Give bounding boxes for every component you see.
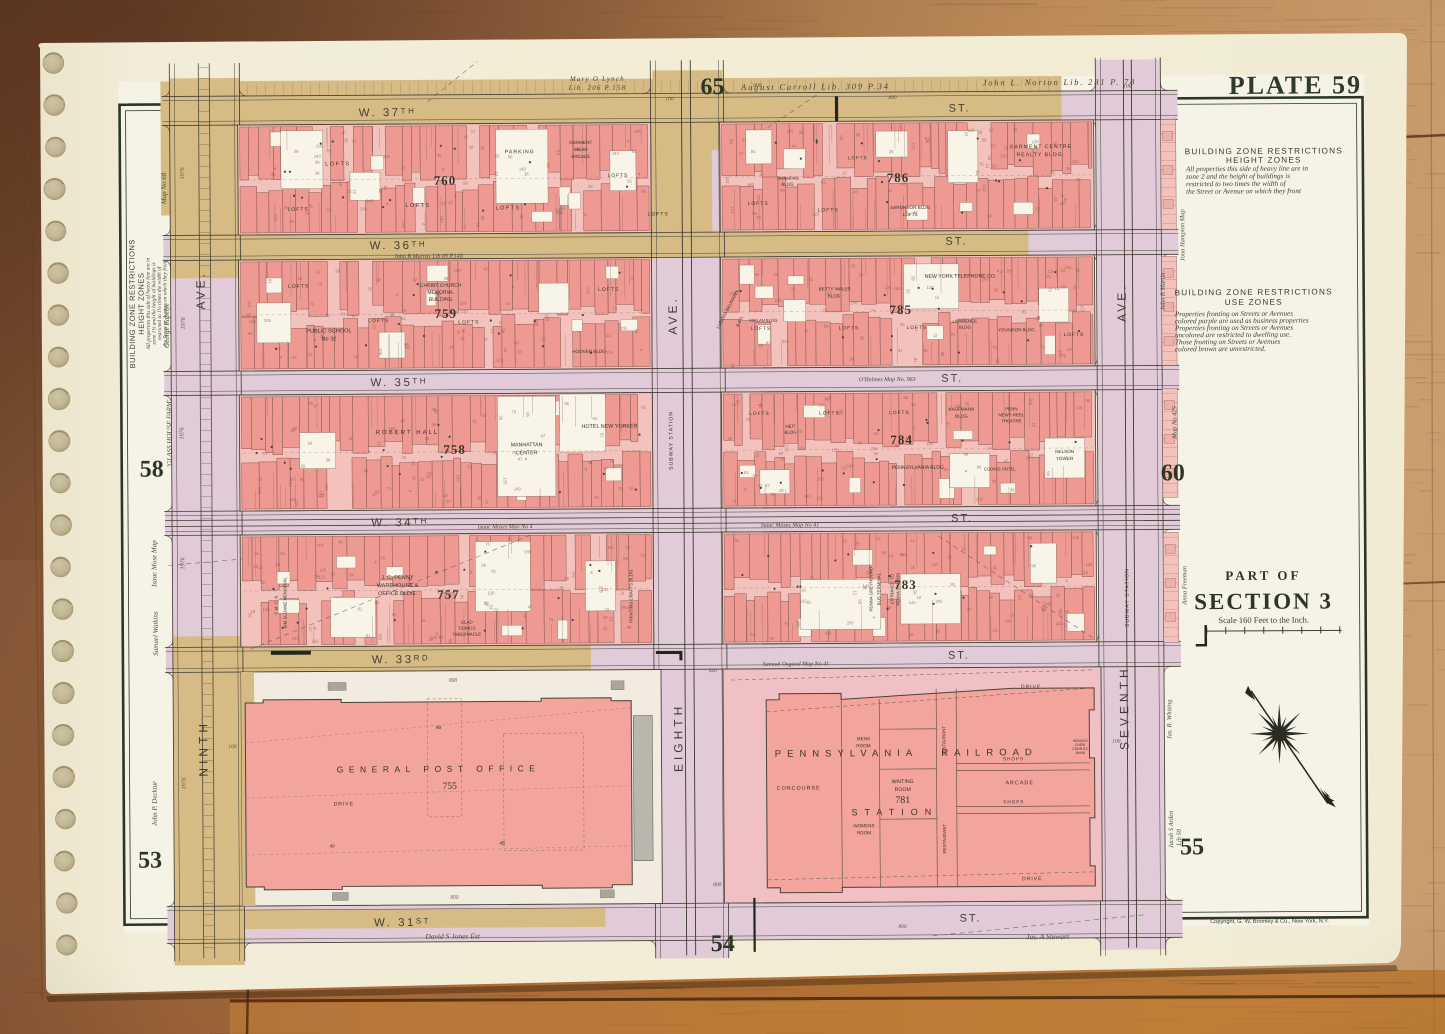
svg-text:1976: 1976 (182, 777, 188, 789)
svg-text:800: 800 (898, 924, 907, 930)
svg-text:96: 96 (375, 600, 380, 605)
svg-text:12: 12 (1035, 206, 1040, 211)
svg-text:205: 205 (1028, 398, 1033, 406)
svg-text:18: 18 (380, 555, 385, 560)
svg-text:143: 143 (894, 286, 902, 291)
svg-text:47: 47 (498, 320, 503, 325)
svg-text:758: 758 (443, 442, 466, 457)
svg-text:36: 36 (446, 499, 451, 504)
svg-text:81: 81 (491, 568, 496, 573)
svg-text:25: 25 (1048, 287, 1053, 292)
svg-text:18: 18 (978, 130, 983, 135)
svg-text:36: 36 (774, 272, 779, 277)
svg-text:47: 47 (352, 313, 357, 318)
svg-text:63: 63 (556, 150, 561, 155)
svg-text:75: 75 (327, 148, 332, 153)
svg-text:1976: 1976 (179, 427, 185, 439)
svg-text:John B Murray Lib 89 P.148: John B Murray Lib 89 P.148 (394, 253, 463, 260)
svg-text:the Street or Avenue on which: the Street or Avenue on which they front (161, 260, 169, 347)
svg-text:81: 81 (600, 433, 605, 438)
svg-text:12: 12 (1055, 286, 1060, 291)
svg-text:PUBLIC SCHOOL: PUBLIC SCHOOL (306, 328, 351, 334)
svg-text:BLDG: BLDG (785, 430, 798, 435)
svg-text:63: 63 (288, 482, 293, 487)
svg-text:John B Martin: John B Martin (1160, 272, 1167, 310)
svg-text:25: 25 (477, 496, 482, 501)
svg-text:125: 125 (461, 309, 469, 314)
svg-text:25: 25 (485, 602, 490, 607)
svg-text:18: 18 (481, 413, 486, 418)
svg-text:75: 75 (475, 223, 480, 228)
svg-text:12: 12 (464, 135, 469, 140)
svg-text:800: 800 (888, 95, 897, 101)
svg-text:ARCADE: ARCADE (571, 154, 590, 159)
svg-text:143: 143 (847, 463, 855, 468)
svg-text:12: 12 (441, 201, 446, 206)
svg-text:81: 81 (1047, 274, 1052, 279)
svg-text:LOFTS: LOFTS (288, 284, 309, 290)
svg-text:LOFTS: LOFTS (1064, 332, 1085, 338)
svg-text:36: 36 (294, 149, 299, 154)
svg-text:58: 58 (850, 263, 855, 268)
svg-text:RESTAURANT: RESTAURANT (942, 824, 947, 854)
svg-text:12: 12 (935, 295, 940, 300)
svg-text:PENN: PENN (1005, 406, 1017, 411)
svg-text:96: 96 (627, 625, 632, 630)
svg-text:75: 75 (613, 306, 618, 311)
svg-text:PENNA STATION: PENNA STATION (895, 573, 900, 606)
svg-text:47: 47 (1039, 323, 1044, 328)
svg-text:25: 25 (326, 207, 331, 212)
svg-text:75: 75 (316, 270, 321, 275)
svg-text:63: 63 (439, 635, 444, 640)
svg-text:18: 18 (603, 615, 608, 620)
svg-text:SEVENTH: SEVENTH (1117, 665, 1132, 750)
svg-text:SIMLAN BLDG.: SIMLAN BLDG. (749, 318, 778, 323)
svg-text:81: 81 (889, 553, 894, 558)
svg-text:96: 96 (728, 436, 733, 441)
svg-text:'GLASS HOUSE FARM': 'GLASS HOUSE FARM' (165, 399, 173, 467)
svg-text:25: 25 (900, 322, 905, 327)
svg-text:DRIVE: DRIVE (334, 801, 354, 807)
svg-text:125: 125 (885, 285, 893, 290)
svg-text:36: 36 (437, 153, 442, 158)
svg-text:ARCADE: ARCADE (1005, 780, 1034, 786)
svg-text:John P. Decktur: John P. Decktur (151, 781, 159, 826)
svg-text:81: 81 (268, 279, 273, 284)
svg-text:Isaac Moses Map No 41: Isaac Moses Map No 41 (760, 522, 819, 529)
svg-text:SUBWAY STATION: SUBWAY STATION (668, 411, 674, 470)
svg-text:ST.: ST. (941, 373, 963, 385)
svg-text:47: 47 (739, 151, 744, 156)
svg-text:LOFTS: LOFTS (749, 411, 770, 417)
svg-text:96: 96 (248, 331, 253, 336)
svg-text:12: 12 (730, 363, 735, 368)
svg-text:ST.: ST. (945, 236, 967, 248)
svg-text:75: 75 (583, 467, 588, 472)
svg-text:Y. M. C. A.: Y. M. C. A. (274, 595, 279, 615)
svg-text:63: 63 (1053, 197, 1058, 202)
svg-text:12: 12 (989, 127, 994, 132)
svg-text:58: 58 (858, 599, 863, 604)
svg-text:58: 58 (1027, 535, 1032, 540)
svg-text:KAUFMANN: KAUFMANN (948, 407, 974, 412)
svg-text:63: 63 (375, 489, 380, 494)
svg-text:BUILDING ZONE RESTRICTIONS: BUILDING ZONE RESTRICTIONS (1185, 146, 1343, 156)
svg-text:47: 47 (506, 301, 511, 306)
svg-text:CHRIST CHURCH: CHRIST CHURCH (420, 283, 462, 289)
svg-text:75: 75 (467, 465, 472, 470)
svg-text:colored brown are unrestricted: colored brown are unrestricted. (1175, 345, 1266, 354)
svg-text:25: 25 (275, 562, 280, 567)
svg-text:58: 58 (987, 155, 992, 160)
svg-text:LOFTS: LOFTS (903, 212, 918, 217)
svg-text:125: 125 (545, 314, 550, 322)
svg-text:18: 18 (433, 409, 438, 414)
svg-text:36: 36 (771, 492, 776, 497)
svg-text:81: 81 (801, 588, 806, 593)
svg-text:58: 58 (463, 181, 468, 186)
svg-text:MANHATTAN: MANHATTAN (511, 442, 543, 448)
svg-text:SHOPS: SHOPS (1003, 756, 1024, 761)
svg-text:58: 58 (1031, 563, 1036, 568)
svg-text:ST.: ST. (948, 650, 970, 662)
svg-text:125: 125 (775, 298, 783, 303)
svg-text:40: 40 (329, 843, 335, 848)
svg-text:205: 205 (317, 543, 325, 548)
svg-text:759: 759 (434, 306, 457, 321)
svg-text:75: 75 (1050, 170, 1055, 175)
svg-text:58: 58 (940, 352, 945, 357)
svg-text:OFFICE BLDG.: OFFICE BLDG. (378, 591, 417, 597)
svg-text:18: 18 (976, 188, 981, 193)
svg-text:58: 58 (911, 276, 916, 281)
svg-text:143: 143 (982, 184, 987, 192)
svg-text:96: 96 (349, 572, 354, 577)
svg-text:36: 36 (546, 163, 551, 168)
svg-text:58: 58 (390, 312, 395, 317)
svg-text:AVE.: AVE. (1115, 283, 1129, 322)
svg-text:18: 18 (629, 486, 634, 491)
svg-text:YOUNISON BLDG.: YOUNISON BLDG. (998, 327, 1036, 332)
svg-text:800: 800 (753, 83, 762, 89)
svg-text:SECTION 3: SECTION 3 (1194, 588, 1333, 614)
svg-text:TIDINGS: TIDINGS (458, 626, 476, 631)
svg-text:18: 18 (809, 277, 814, 282)
svg-text:75: 75 (310, 302, 315, 307)
svg-text:GLAD: GLAD (461, 620, 473, 625)
svg-text:100: 100 (665, 96, 674, 102)
svg-text:205: 205 (847, 620, 855, 625)
svg-text:205: 205 (524, 549, 532, 554)
svg-text:PENNA GREYHOUND: PENNA GREYHOUND (868, 567, 873, 612)
svg-text:47: 47 (757, 404, 762, 409)
svg-text:125: 125 (312, 639, 320, 644)
svg-text:12: 12 (985, 163, 990, 168)
svg-text:143: 143 (987, 445, 995, 450)
svg-text:785: 785 (889, 302, 912, 317)
svg-text:63: 63 (853, 189, 858, 194)
svg-text:75: 75 (456, 330, 461, 335)
svg-text:81: 81 (821, 179, 826, 184)
svg-text:25: 25 (421, 618, 426, 623)
svg-text:WAREHOUSE &: WAREHOUSE & (377, 583, 419, 589)
svg-text:18: 18 (823, 307, 828, 312)
svg-text:125: 125 (318, 575, 326, 580)
svg-text:LOFTS: LOFTS (907, 325, 928, 331)
svg-text:LOFTS: LOFTS (748, 201, 769, 207)
svg-text:Jas. A Stewart: Jas. A Stewart (1026, 932, 1070, 941)
svg-text:96: 96 (404, 342, 409, 347)
svg-text:47: 47 (308, 627, 313, 632)
svg-text:18: 18 (779, 488, 784, 493)
svg-text:63: 63 (308, 441, 313, 446)
svg-text:ST.: ST. (960, 913, 982, 925)
svg-text:PLATE 59: PLATE 59 (1229, 70, 1362, 100)
svg-text:36: 36 (315, 171, 320, 176)
svg-text:12: 12 (993, 627, 998, 632)
svg-text:75: 75 (791, 287, 796, 292)
svg-text:18: 18 (429, 637, 434, 642)
svg-text:81: 81 (975, 171, 980, 176)
svg-text:36: 36 (501, 328, 506, 333)
svg-text:143: 143 (909, 600, 917, 605)
svg-text:63: 63 (753, 473, 758, 478)
svg-text:81: 81 (401, 316, 406, 321)
svg-text:12: 12 (625, 545, 630, 550)
svg-text:LOFTS: LOFTS (839, 325, 860, 331)
svg-text:BUS TERMINAL: BUS TERMINAL (876, 572, 881, 605)
svg-text:12: 12 (347, 188, 352, 193)
svg-text:58: 58 (517, 349, 522, 354)
svg-text:781: 781 (895, 795, 910, 806)
svg-text:18: 18 (1031, 422, 1036, 427)
svg-text:J. C. PENNY: J. C. PENNY (381, 575, 414, 581)
svg-text:125: 125 (1085, 562, 1093, 567)
svg-text:STATION: STATION (851, 807, 938, 818)
svg-text:143: 143 (1005, 618, 1013, 623)
svg-text:75: 75 (387, 486, 392, 491)
svg-text:12: 12 (606, 333, 611, 338)
svg-text:1976: 1976 (180, 557, 186, 569)
svg-text:47: 47 (377, 277, 382, 282)
svg-text:58: 58 (315, 160, 320, 165)
svg-text:96: 96 (480, 216, 485, 221)
svg-text:THEATRE: THEATRE (1001, 418, 1021, 423)
svg-text:4B: 4B (499, 840, 505, 845)
svg-text:125: 125 (832, 447, 840, 452)
svg-text:36: 36 (588, 184, 593, 189)
svg-text:96: 96 (349, 436, 354, 441)
svg-text:143: 143 (730, 206, 735, 214)
svg-text:96: 96 (623, 556, 628, 561)
svg-text:75: 75 (855, 541, 860, 546)
svg-text:143: 143 (263, 607, 271, 612)
svg-text:25: 25 (401, 165, 406, 170)
svg-text:81: 81 (364, 468, 369, 473)
svg-text:205: 205 (796, 621, 801, 629)
svg-text:63: 63 (495, 153, 500, 158)
svg-text:96: 96 (909, 632, 914, 637)
svg-text:36: 36 (903, 395, 908, 400)
svg-text:47: 47 (1004, 458, 1009, 463)
svg-text:75: 75 (745, 417, 750, 422)
svg-text:143: 143 (1072, 159, 1080, 164)
svg-text:58: 58 (326, 457, 331, 462)
svg-text:75: 75 (318, 282, 323, 287)
svg-text:the Street or Avenue on which: the Street or Avenue on which they front (1186, 187, 1302, 196)
svg-text:63: 63 (944, 467, 949, 472)
svg-text:ST.: ST. (949, 103, 971, 115)
svg-text:47: 47 (313, 404, 318, 409)
svg-text:NEW YORK TELEPHONE CO.: NEW YORK TELEPHONE CO. (925, 273, 997, 279)
svg-text:36: 36 (468, 570, 473, 575)
svg-text:18: 18 (605, 607, 610, 612)
svg-text:Anna Freeman: Anna Freeman (1181, 566, 1188, 606)
svg-text:47: 47 (898, 348, 903, 353)
svg-text:CENTER: CENTER (516, 450, 538, 456)
svg-text:96: 96 (564, 401, 569, 406)
svg-text:81: 81 (1022, 309, 1027, 314)
svg-text:Map No 68: Map No 68 (160, 172, 168, 205)
svg-text:75: 75 (871, 308, 876, 313)
svg-text:Copyright, G. W. Bromley & Co.: Copyright, G. W. Bromley & Co., New York… (1210, 918, 1329, 925)
svg-text:63: 63 (514, 340, 519, 345)
svg-text:36: 36 (254, 551, 259, 556)
svg-text:LOFTS: LOFTS (598, 287, 619, 293)
svg-text:AVE.: AVE. (666, 296, 680, 335)
svg-text:96: 96 (289, 219, 294, 224)
svg-text:784: 784 (890, 432, 913, 447)
svg-text:75: 75 (480, 146, 485, 151)
svg-text:125: 125 (1000, 153, 1008, 158)
svg-text:47: 47 (352, 138, 357, 143)
svg-text:143: 143 (804, 494, 812, 499)
svg-text:63: 63 (608, 545, 613, 550)
svg-text:12: 12 (352, 189, 357, 194)
svg-text:18: 18 (503, 347, 508, 352)
svg-text:81: 81 (326, 312, 331, 317)
svg-text:25: 25 (330, 571, 335, 576)
svg-text:AARONSON BLDG: AARONSON BLDG (890, 205, 931, 210)
svg-text:143: 143 (439, 216, 444, 224)
svg-text:18: 18 (917, 595, 922, 600)
svg-text:58: 58 (735, 400, 740, 405)
svg-text:36: 36 (1066, 166, 1071, 171)
svg-text:125: 125 (968, 128, 976, 133)
svg-text:205: 205 (782, 339, 790, 344)
svg-text:CODING HOTEL: CODING HOTEL (984, 466, 1017, 471)
svg-text:BLDG: BLDG (955, 414, 968, 419)
svg-text:18: 18 (603, 466, 608, 471)
svg-text:205: 205 (264, 318, 272, 323)
svg-text:LOFTS: LOFTS (819, 410, 840, 416)
svg-text:125: 125 (601, 587, 609, 592)
svg-text:12: 12 (494, 171, 499, 176)
svg-text:12: 12 (541, 336, 546, 341)
svg-text:25: 25 (1007, 268, 1012, 273)
svg-text:96: 96 (977, 465, 982, 470)
svg-text:63: 63 (765, 483, 770, 488)
svg-text:WEAR: WEAR (574, 147, 588, 152)
svg-text:58: 58 (987, 213, 992, 218)
svg-text:ENTRANCE TO: ENTRANCE TO (889, 573, 894, 604)
svg-text:205: 205 (556, 210, 564, 215)
svg-text:LOFTS: LOFTS (406, 203, 431, 209)
svg-text:58: 58 (839, 135, 844, 140)
svg-text:58: 58 (1073, 285, 1078, 290)
svg-text:36: 36 (383, 185, 388, 190)
svg-text:12: 12 (910, 538, 915, 543)
svg-text:LOFTS: LOFTS (608, 173, 629, 179)
svg-text:Samuel Osgood Map No 41: Samuel Osgood Map No 41 (763, 660, 829, 667)
svg-text:143: 143 (1045, 601, 1053, 606)
svg-text:25: 25 (910, 565, 915, 570)
svg-text:125: 125 (927, 441, 935, 446)
svg-text:81: 81 (460, 595, 465, 600)
svg-text:96: 96 (770, 636, 775, 641)
svg-text:WM SLOANE MEMORIAL: WM SLOANE MEMORIAL (282, 576, 287, 628)
svg-text:205: 205 (378, 633, 383, 641)
svg-text:125: 125 (800, 599, 808, 604)
svg-text:BLDG: BLDG (959, 325, 972, 330)
svg-text:12: 12 (991, 142, 996, 147)
svg-text:HEIT: HEIT (785, 424, 795, 429)
svg-text:HEIGHT ZONES: HEIGHT ZONES (1226, 156, 1302, 165)
svg-text:81: 81 (632, 149, 637, 154)
svg-text:18: 18 (1076, 268, 1081, 273)
svg-text:75: 75 (1036, 315, 1041, 320)
svg-text:58: 58 (799, 130, 804, 135)
svg-text:47: 47 (528, 604, 533, 609)
svg-text:MENS: MENS (857, 736, 870, 741)
svg-text:LAWRENCE: LAWRENCE (952, 319, 977, 324)
svg-text:58: 58 (982, 137, 987, 142)
svg-text:36: 36 (923, 348, 928, 353)
svg-text:96: 96 (338, 539, 343, 544)
svg-text:125: 125 (319, 568, 327, 573)
svg-text:75: 75 (485, 542, 490, 547)
svg-text:12: 12 (258, 565, 263, 570)
svg-text:786: 786 (887, 170, 910, 185)
svg-text:125: 125 (294, 500, 299, 508)
svg-text:RESTAURANT: RESTAURANT (941, 726, 946, 756)
svg-text:205: 205 (1080, 305, 1085, 313)
svg-text:58: 58 (824, 323, 829, 328)
svg-text:LOFTS: LOFTS (288, 207, 309, 213)
svg-text:96: 96 (1076, 177, 1081, 182)
svg-text:125: 125 (496, 357, 504, 362)
svg-text:75: 75 (619, 591, 624, 596)
svg-text:SUBWAY STATION: SUBWAY STATION (1124, 568, 1130, 627)
svg-text:96: 96 (300, 477, 305, 482)
svg-text:58: 58 (498, 415, 503, 420)
svg-text:36: 36 (271, 172, 276, 177)
svg-text:81: 81 (366, 633, 371, 638)
svg-text:81: 81 (308, 352, 313, 357)
svg-text:18: 18 (947, 555, 952, 560)
svg-text:36: 36 (876, 536, 881, 541)
svg-text:12: 12 (471, 129, 476, 134)
svg-text:HOOVER BLDG: HOOVER BLDG (572, 349, 606, 354)
svg-text:75: 75 (402, 308, 407, 313)
svg-text:58: 58 (564, 576, 569, 581)
svg-text:205: 205 (787, 129, 795, 134)
svg-text:18: 18 (412, 475, 417, 480)
svg-text:47: 47 (484, 500, 489, 505)
svg-text:25: 25 (640, 553, 645, 558)
svg-text:25: 25 (1004, 145, 1009, 150)
